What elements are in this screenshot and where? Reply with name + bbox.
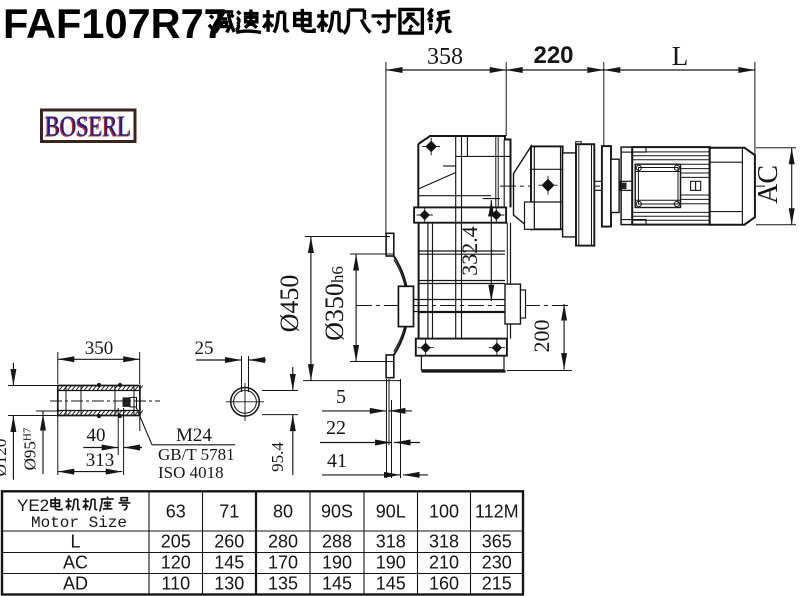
svg-text:40: 40 [87, 425, 106, 446]
svg-text:FAF107R77: FAF107R77 [3, 0, 227, 47]
svg-text:280: 280 [268, 532, 298, 552]
svg-text:358: 358 [427, 44, 463, 70]
svg-text:135: 135 [268, 574, 298, 594]
svg-text:190: 190 [322, 553, 352, 573]
svg-text:210: 210 [429, 553, 459, 573]
svg-text:BOSERL: BOSERL [45, 111, 131, 143]
svg-text:313: 313 [86, 450, 115, 471]
svg-text:145: 145 [322, 574, 352, 594]
svg-text:Ø95H7: Ø95H7 [21, 427, 40, 470]
svg-text:AD: AD [63, 574, 88, 594]
svg-text:220: 220 [533, 42, 573, 69]
svg-text:25: 25 [195, 338, 214, 359]
svg-text:365: 365 [482, 532, 512, 552]
svg-text:130: 130 [214, 574, 244, 594]
svg-text:5: 5 [336, 386, 346, 408]
svg-text:230: 230 [482, 553, 512, 573]
svg-text:M24: M24 [176, 425, 212, 446]
svg-text:GB/T 5781: GB/T 5781 [158, 445, 235, 464]
svg-text:41: 41 [327, 450, 347, 472]
svg-text:L: L [672, 41, 689, 71]
svg-text:63: 63 [166, 502, 186, 522]
svg-text:190: 190 [376, 553, 406, 573]
svg-text:Motor Size: Motor Size [31, 514, 127, 532]
svg-text:AC: AC [63, 553, 88, 573]
svg-text:71: 71 [219, 502, 239, 522]
svg-text:Ø120: Ø120 [0, 439, 10, 477]
svg-text:Ø350h6: Ø350h6 [320, 266, 349, 341]
svg-text:145: 145 [214, 553, 244, 573]
svg-text:318: 318 [429, 532, 459, 552]
svg-text:YE2: YE2 [17, 496, 49, 515]
svg-text:90L: 90L [376, 502, 406, 522]
svg-text:120: 120 [161, 553, 191, 573]
svg-text:260: 260 [214, 532, 244, 552]
svg-text:80: 80 [273, 502, 293, 522]
svg-text:215: 215 [482, 574, 512, 594]
svg-text:90S: 90S [321, 502, 353, 522]
svg-text:350: 350 [85, 338, 114, 359]
svg-text:332.4: 332.4 [457, 226, 482, 276]
svg-text:160: 160 [429, 574, 459, 594]
svg-text:200: 200 [529, 320, 554, 353]
svg-text:288: 288 [322, 532, 352, 552]
svg-text:170: 170 [268, 553, 298, 573]
svg-text:318: 318 [376, 532, 406, 552]
svg-text:ISO 4018: ISO 4018 [158, 463, 224, 482]
svg-text:95.4: 95.4 [268, 442, 287, 472]
svg-text:100: 100 [429, 502, 459, 522]
svg-text:L: L [70, 532, 80, 552]
svg-text:110: 110 [161, 574, 190, 594]
svg-text:112M: 112M [475, 502, 519, 522]
svg-text:Ø450: Ø450 [275, 275, 304, 333]
svg-text:145: 145 [376, 574, 406, 594]
svg-text:AC: AC [753, 165, 784, 204]
svg-text:22: 22 [326, 417, 346, 439]
svg-text:205: 205 [161, 532, 191, 552]
